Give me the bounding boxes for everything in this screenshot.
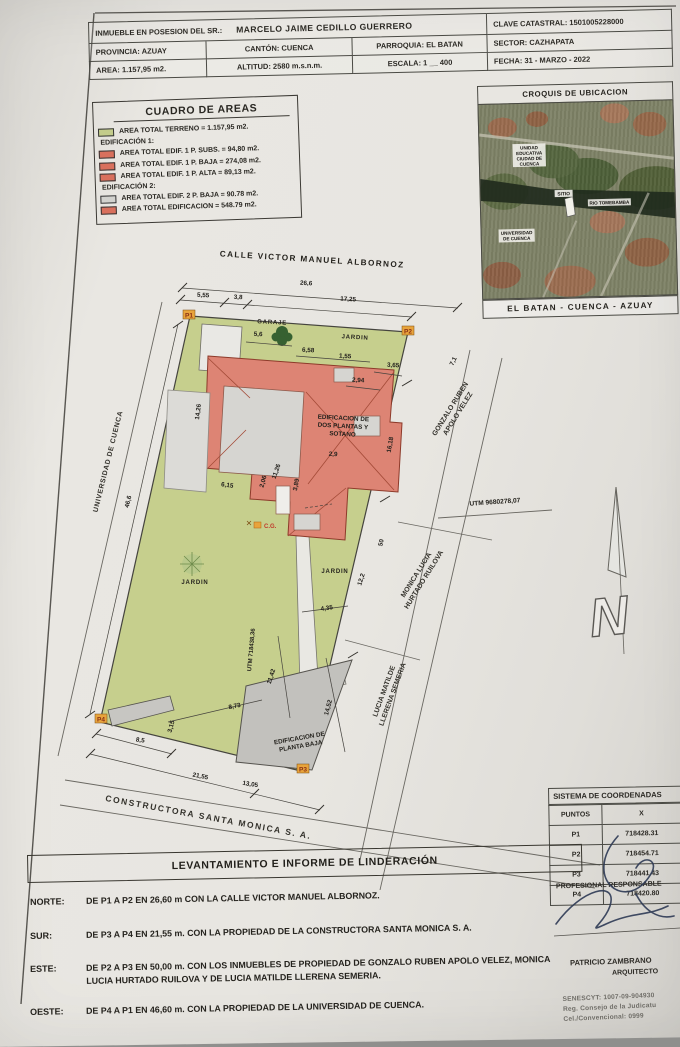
gray-strip <box>108 696 174 726</box>
svg-text:11,26: 11,26 <box>271 463 283 480</box>
roof-lines <box>208 358 394 536</box>
svg-text:17,25: 17,25 <box>340 295 357 303</box>
svg-text:3,8: 3,8 <box>233 294 243 302</box>
red-swatch <box>100 173 116 182</box>
svg-text:5,55: 5,55 <box>197 292 210 300</box>
svg-text:8,5: 8,5 <box>135 736 145 744</box>
red-swatch <box>99 151 115 160</box>
svg-text:11,42: 11,42 <box>266 668 278 685</box>
croquis-de-ubicacion: CROQUIS DE UBICACION UNIDAD EDUCATIVA CI… <box>477 81 679 319</box>
owner-name: MARCELO JAIME CEDILLO GUERRERO <box>236 21 412 35</box>
svg-text:DOS PLANTAS Y: DOS PLANTAS Y <box>318 422 370 432</box>
lindero-label: ESTE: <box>30 962 80 988</box>
north-letter: N <box>586 585 632 649</box>
svg-text:50: 50 <box>377 538 385 547</box>
sitio-label: SITIO <box>557 191 570 197</box>
street-label: CALLE VICTOR MANUEL ALBORNOZ <box>220 249 405 269</box>
svg-text:HURTADO RUILOVA: HURTADO RUILOVA <box>404 550 446 611</box>
red-swatch <box>99 162 115 171</box>
area: AREA: 1.157,95 m2. <box>89 59 207 80</box>
svg-text:2,94: 2,94 <box>352 377 365 385</box>
lindero-oeste: OESTE: DE P4 A P1 EN 46,60 m. CON LA PRO… <box>30 996 575 1020</box>
professional-registry: SENESCYT: 1007-09-904930 Reg. Consejo de… <box>562 991 657 1025</box>
universidad-label: DE CUENCA <box>503 236 531 242</box>
rio-tomebamba-label: RIO TOMEBAMBA <box>589 200 630 206</box>
lindero-text: DE P4 A P1 EN 46,60 m. CON LA PROPIEDAD … <box>86 996 572 1018</box>
courtyard <box>219 386 304 478</box>
survey-point-markers: P1 P2 P3 P4 <box>95 310 414 774</box>
boundary-lines <box>58 302 600 890</box>
patio <box>164 390 210 492</box>
lindero-label: OESTE: <box>30 1005 80 1019</box>
altitud: ALTITUD: 2580 m.s.n.m. <box>207 56 353 77</box>
svg-text:SOTANO: SOTANO <box>329 430 356 438</box>
svg-text:3,89: 3,89 <box>292 478 301 492</box>
svg-text:26,6: 26,6 <box>300 280 313 288</box>
svg-text:14,26: 14,26 <box>194 403 203 420</box>
lindero-label: NORTE: <box>30 895 80 909</box>
north-arrow-spike <box>608 487 626 577</box>
walkway <box>296 536 346 690</box>
svg-text:16,18: 16,18 <box>386 436 396 453</box>
building-2-label: EDIFICACION DE PLANTA BAJA <box>273 731 326 755</box>
coord-x: 718428.31 <box>602 823 680 844</box>
aerial-photo: UNIDAD EDUCATIVA CIUDAD DE CUENCA SITIO … <box>477 99 678 300</box>
lucia-label: LUCIA MATILDE LLERENA SEMERIA <box>370 659 408 727</box>
coords-header-row: PUNTOS X <box>549 803 680 826</box>
lindero-label: SUR: <box>30 929 80 943</box>
dimension-lines <box>90 288 458 810</box>
building-1-label: EDIFICACION DE DOS PLANTAS Y SOTANO <box>317 414 370 440</box>
dimension-labels: 26,6 5,55 3,8 17,25 7,1 16,18 50 12,2 14… <box>124 280 459 790</box>
coords-title: SISTEMA DE COORDENADAS <box>548 785 680 805</box>
svg-text:6,15: 6,15 <box>221 481 235 490</box>
lindero-text: DE P2 A P3 EN 50,00 m. CON LOS INMUEBLES… <box>86 953 572 988</box>
svg-text:APOLO VELEZ: APOLO VELEZ <box>442 391 474 437</box>
svg-text:GONZALO RUBEN: GONZALO RUBEN <box>431 381 470 437</box>
cg-marker: C.G. <box>247 521 277 530</box>
cuadro-title: CUADRO DE AREAS <box>113 101 289 122</box>
cuadro-de-areas: CUADRO DE AREAS AREA TOTAL TERRENO = 1.1… <box>92 95 302 225</box>
svg-text:4,35: 4,35 <box>320 604 334 613</box>
svg-text:14,52: 14,52 <box>323 699 334 717</box>
svg-text:46,6: 46,6 <box>124 494 134 508</box>
building-2 <box>236 660 352 770</box>
svg-text:6,58: 6,58 <box>302 347 315 355</box>
plot-polygon <box>100 316 408 772</box>
gray-swatch <box>100 195 116 204</box>
p1-marker: P1 <box>185 313 193 320</box>
utm-horizontal-label: UTM 9680278,07 <box>469 497 521 508</box>
road-line <box>541 221 578 298</box>
svg-text:EDIFICACION DE: EDIFICACION DE <box>317 414 369 424</box>
escala: ESCALA: 1 __ 400 <box>353 53 488 74</box>
coord-x: 718454.71 <box>602 843 680 864</box>
professional-name: PATRICIO ZAMBRANO <box>570 956 652 968</box>
lindero-este: ESTE: DE P2 A P3 EN 50,00 m. CON LOS INM… <box>30 953 575 989</box>
svg-text:EDIFICACION DE: EDIFICACION DE <box>273 731 325 747</box>
svg-text:8,73: 8,73 <box>228 702 242 711</box>
gonzalo-label: GONZALO RUBEN APOLO VELEZ <box>431 381 477 442</box>
building-1 <box>164 356 402 540</box>
lindero-sur: SUR: DE P3 A P4 EN 21,55 m. CON LA PROPI… <box>30 920 575 944</box>
p4-marker: P4 <box>97 717 105 724</box>
constructora-label: CONSTRUCTORA SANTA MONICA S. A. <box>105 793 313 841</box>
linderacion-banner: LEVANTAMIENTO E INFORME DE LINDERACIÓN <box>27 844 582 883</box>
tree-light <box>180 552 204 576</box>
header-table: INMUEBLE EN POSESION DEL SR.: MARCELO JA… <box>88 9 673 80</box>
fecha: FECHA: 31 - MARZO - 2022 <box>488 49 673 71</box>
lindero-text: DE P3 A P4 EN 21,55 m. CON LA PROPIEDAD … <box>86 920 572 942</box>
svg-text:3,15: 3,15 <box>167 719 177 733</box>
green-swatch <box>98 128 114 137</box>
svg-text:3,65: 3,65 <box>387 362 400 370</box>
svg-text:1,55: 1,55 <box>339 353 352 361</box>
svg-text:5,6: 5,6 <box>253 331 263 339</box>
professional-title: ARQUITECTO <box>612 968 658 977</box>
unidad-educativa-label: CUENCA <box>520 161 540 166</box>
scanned-survey-document: { "header": { "owner_label": "INMUEBLE E… <box>0 0 680 1023</box>
cg-label: C.G. <box>264 524 277 530</box>
svg-text:CONSTRUCTORA SANTA MONICA S. A: CONSTRUCTORA SANTA MONICA S. A. <box>105 793 313 841</box>
jardin-label: JARDIN <box>321 569 348 575</box>
red-swatch <box>101 207 117 216</box>
svg-text:12,2: 12,2 <box>356 572 367 586</box>
svg-text:2,06: 2,06 <box>259 474 269 488</box>
svg-text:LUCIA MATILDE: LUCIA MATILDE <box>372 665 397 718</box>
universidad-de-cuenca-label: UNIVERSIDAD DE CUENCA <box>93 410 125 513</box>
plan-labels: CALLE VICTOR MANUEL ALBORNOZ GARAJE JARD… <box>181 249 520 754</box>
dimension-ticks <box>85 283 462 814</box>
garage-area <box>199 324 242 373</box>
road-line <box>479 130 674 163</box>
svg-text:MONICA LUCIA: MONICA LUCIA <box>400 552 433 599</box>
owner-label: INMUEBLE EN POSESION DEL SR.: <box>95 25 222 37</box>
svg-text:LLERENA SEMERIA: LLERENA SEMERIA <box>378 662 407 727</box>
svg-text:PLANTA BAJA: PLANTA BAJA <box>279 739 324 754</box>
jardin-label: JARDIN <box>181 580 208 586</box>
svg-text:2,9: 2,9 <box>328 451 338 459</box>
p3-marker: P3 <box>299 767 307 774</box>
punto: P1 <box>549 825 602 846</box>
lindero-norte: NORTE: DE P1 A P2 EN 26,60 m CON LA CALL… <box>30 886 575 910</box>
utm-vertical-label: UTM 718438,36 <box>247 628 257 672</box>
monica-label: MONICA LUCIA HURTADO RUILOVA <box>396 545 445 611</box>
col-puntos: PUNTOS <box>549 805 602 826</box>
svg-text:7,1: 7,1 <box>449 355 459 366</box>
svg-text:UNIVERSIDAD DE CUENCA: UNIVERSIDAD DE CUENCA <box>93 410 125 513</box>
aerial-photo-overlay: UNIDAD EDUCATIVA CIUDAD DE CUENCA SITIO … <box>478 100 677 299</box>
coords-row: P1718428.31 <box>549 823 680 846</box>
lindero-text: DE P1 A P2 EN 26,60 m CON LA CALLE VICTO… <box>86 886 572 908</box>
north-arrow: N <box>578 482 678 662</box>
tree-dark <box>272 326 293 346</box>
svg-text:21,55: 21,55 <box>192 772 209 782</box>
col-x: X <box>602 803 680 824</box>
jardin-label: JARDIN <box>341 334 368 341</box>
p2-marker: P2 <box>404 329 412 336</box>
neighbor-labels: UNIVERSIDAD DE CUENCA GONZALO RUBEN APOL… <box>93 381 478 841</box>
garaje-label: GARAJE <box>257 319 287 327</box>
svg-text:13,05: 13,05 <box>242 780 259 789</box>
